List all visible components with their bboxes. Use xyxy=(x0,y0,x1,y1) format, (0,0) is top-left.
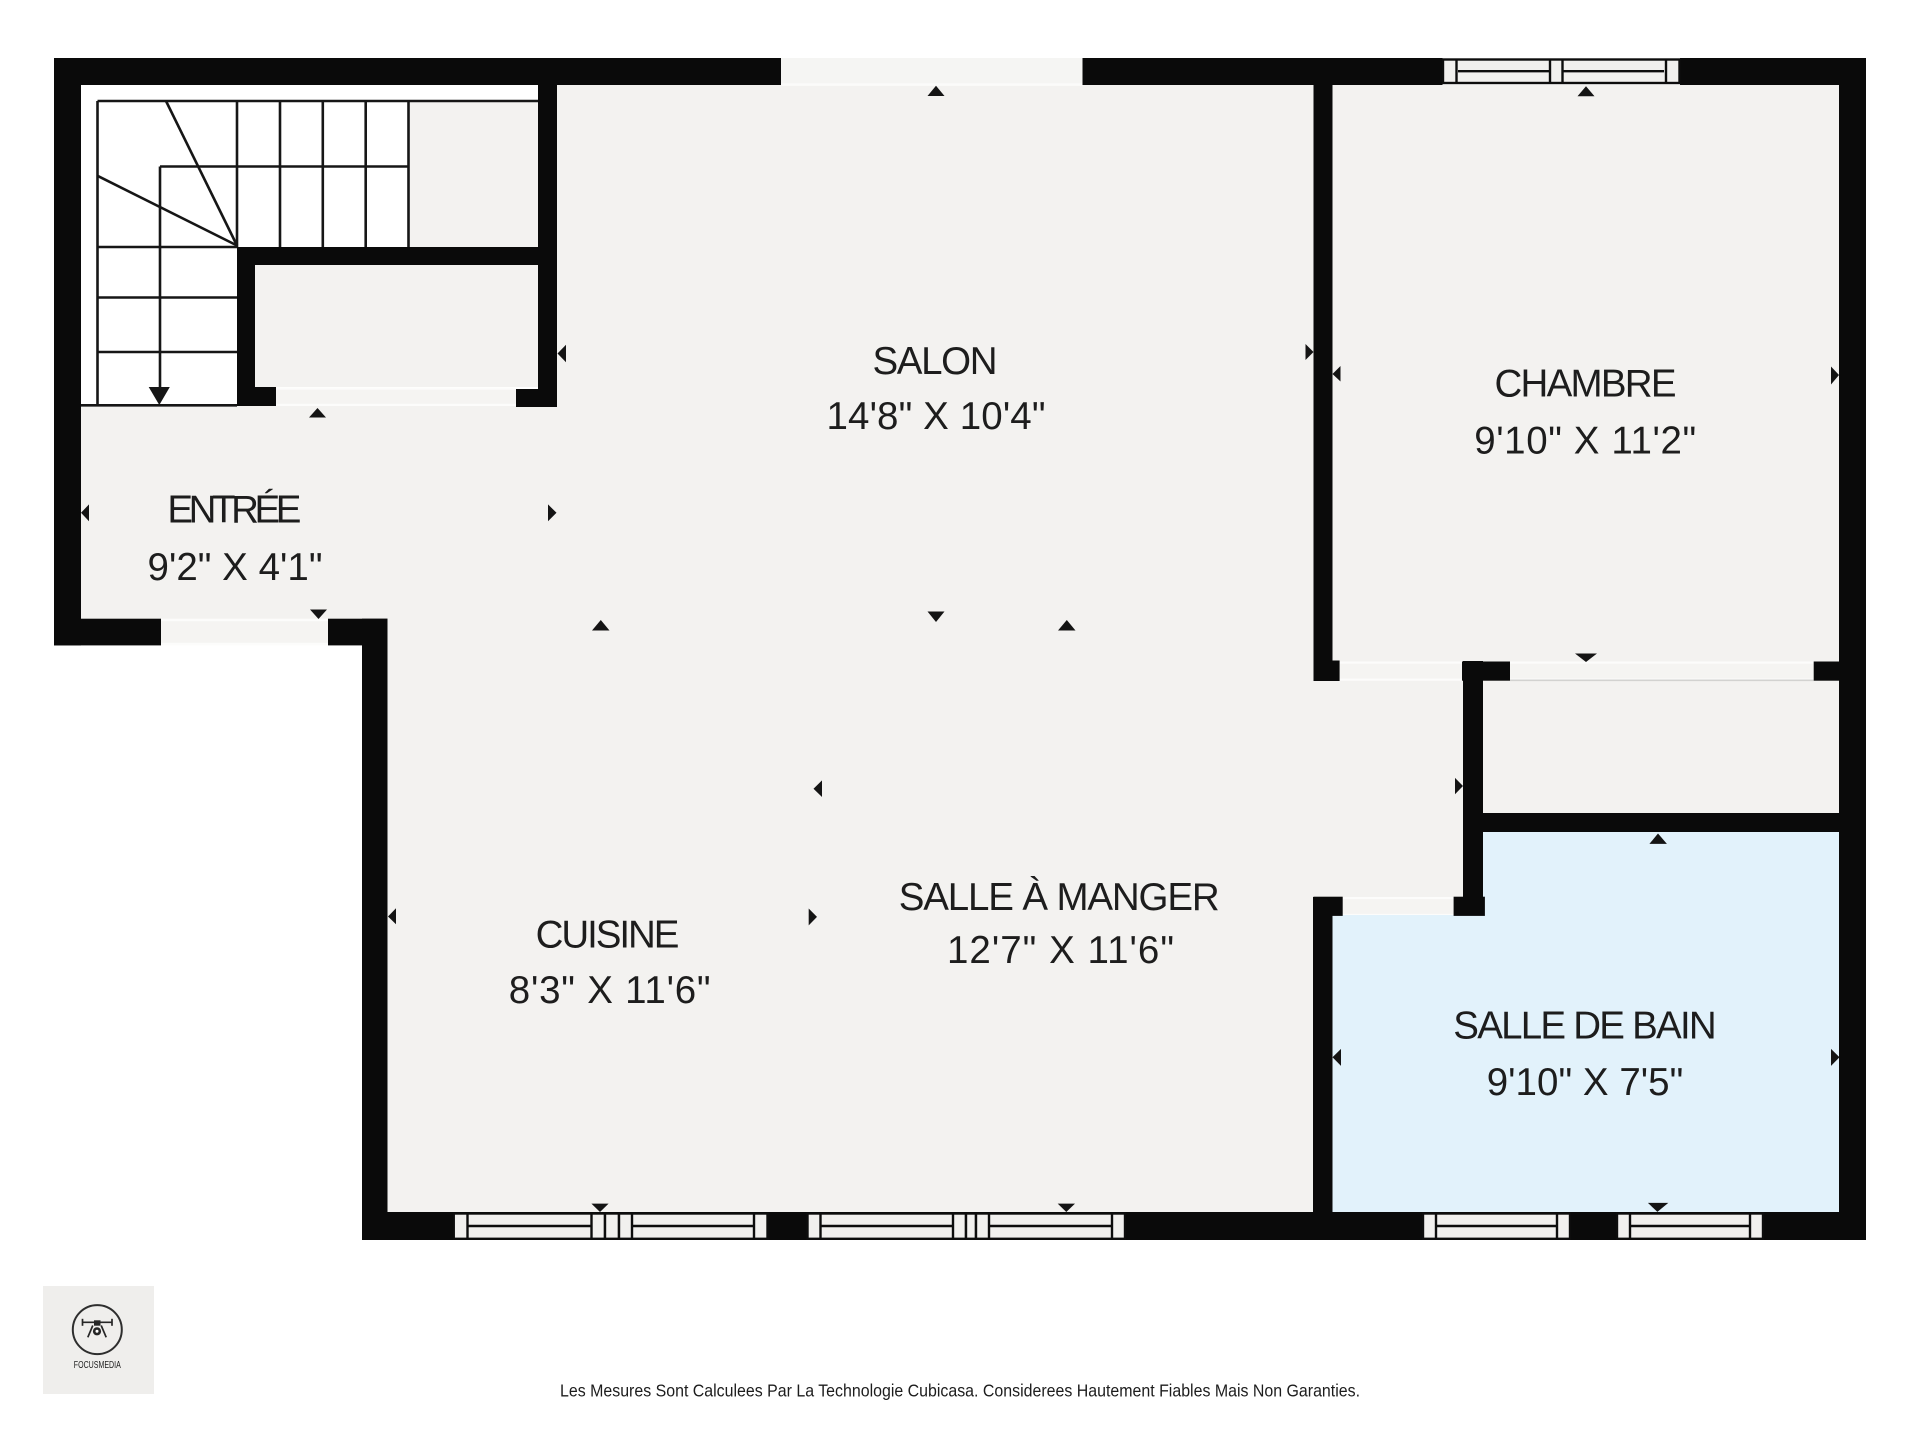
svg-text:ENTRÉE: ENTRÉE xyxy=(167,489,301,532)
svg-text:8'3" X 11'6": 8'3" X 11'6" xyxy=(509,969,711,1012)
svg-text:14'8" X 10'4": 14'8" X 10'4" xyxy=(827,395,1046,438)
svg-text:CHAMBRE: CHAMBRE xyxy=(1495,363,1677,406)
svg-text:SALON: SALON xyxy=(873,340,998,383)
svg-text:9'10" X 7'5": 9'10" X 7'5" xyxy=(1487,1061,1684,1104)
svg-text:Les Mesures Sont Calculees Par: Les Mesures Sont Calculees Par La Techno… xyxy=(560,1381,1360,1401)
svg-text:FOCUSMEDIA: FOCUSMEDIA xyxy=(74,1359,121,1371)
svg-text:CUISINE: CUISINE xyxy=(536,913,680,956)
svg-text:9'2" X 4'1": 9'2" X 4'1" xyxy=(148,546,323,589)
svg-text:SALLE À MANGER: SALLE À MANGER xyxy=(899,876,1220,919)
svg-text:SALLE DE BAIN: SALLE DE BAIN xyxy=(1453,1004,1716,1047)
svg-text:12'7" X 11'6": 12'7" X 11'6" xyxy=(947,929,1174,972)
svg-text:9'10" X 11'2": 9'10" X 11'2" xyxy=(1474,420,1696,463)
